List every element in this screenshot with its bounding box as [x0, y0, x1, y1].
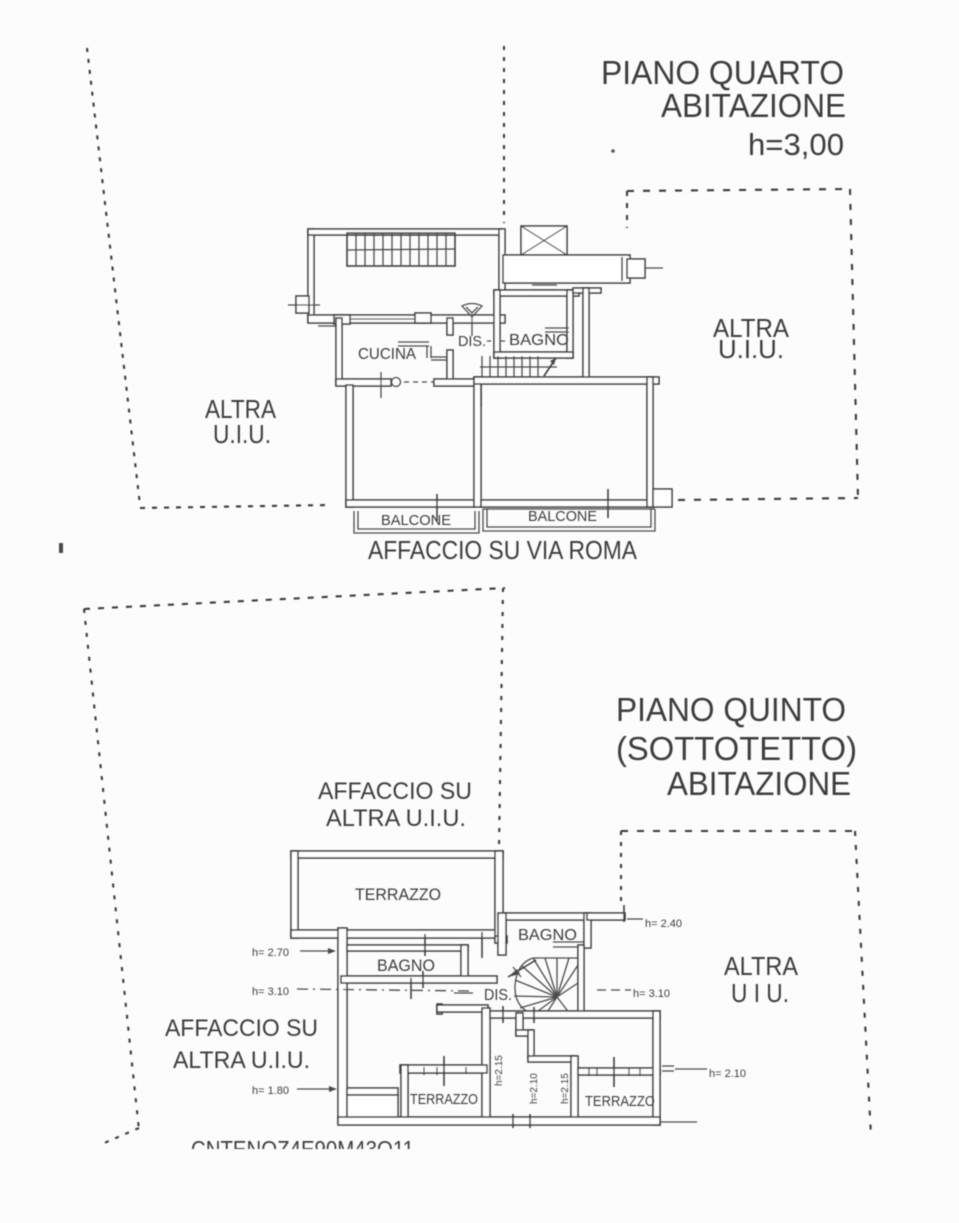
svg-text:ALTRA U.I.U.: ALTRA U.I.U.	[326, 805, 466, 832]
svg-text:BAGNO: BAGNO	[509, 332, 569, 349]
svg-text:U.I.U.: U.I.U.	[718, 334, 784, 364]
svg-text:TERRAZZO: TERRAZZO	[410, 1091, 478, 1108]
svg-text:ALTRA U.I.U.: ALTRA U.I.U.	[173, 1047, 310, 1074]
svg-text:h= 2.40: h= 2.40	[645, 918, 682, 930]
svg-text:PIANO QUARTO: PIANO QUARTO	[601, 54, 844, 91]
svg-text:BALCONE: BALCONE	[381, 512, 451, 529]
svg-text:AFFACCIO SU: AFFACCIO SU	[318, 778, 472, 805]
svg-text:AFFACCIO SU: AFFACCIO SU	[165, 1015, 318, 1042]
svg-text:h= 3.10: h= 3.10	[633, 988, 670, 1000]
svg-text:h= 2.10: h= 2.10	[709, 1068, 746, 1080]
svg-text:AFFACCIO SU VIA ROMA: AFFACCIO SU VIA ROMA	[368, 535, 638, 565]
svg-text:BAGNO: BAGNO	[377, 956, 435, 975]
svg-text:DIS.: DIS.	[484, 987, 512, 1004]
svg-text:BALCONE: BALCONE	[528, 508, 597, 525]
svg-text:h= 1.80: h= 1.80	[252, 1085, 289, 1097]
svg-text:ALTRA: ALTRA	[724, 951, 799, 981]
svg-text:BAGNO: BAGNO	[518, 927, 577, 944]
svg-text:h= 3.10: h= 3.10	[252, 986, 289, 998]
svg-text:ABITAZIONE: ABITAZIONE	[661, 87, 846, 124]
svg-text:ABITAZIONE: ABITAZIONE	[667, 765, 851, 802]
svg-text:h=2.15: h=2.15	[494, 1055, 505, 1086]
svg-text:h=2.15: h=2.15	[560, 1073, 571, 1104]
svg-text:h=2.10: h=2.10	[529, 1073, 540, 1104]
svg-text:h= 2.70: h= 2.70	[252, 947, 289, 959]
svg-text:CUCINA: CUCINA	[358, 346, 416, 363]
svg-text:(SOTTOTETTO): (SOTTOTETTO)	[616, 730, 857, 767]
svg-text:PIANO QUINTO: PIANO QUINTO	[616, 691, 846, 728]
svg-text:TERRAZZO: TERRAZZO	[585, 1093, 655, 1110]
svg-text:TERRAZZO: TERRAZZO	[355, 885, 441, 904]
svg-text:U.I.U.: U.I.U.	[213, 419, 271, 449]
svg-text:U I U.: U I U.	[731, 978, 789, 1008]
svg-text:DIS.: DIS.	[458, 333, 486, 350]
svg-text:h=3,00: h=3,00	[748, 127, 844, 162]
